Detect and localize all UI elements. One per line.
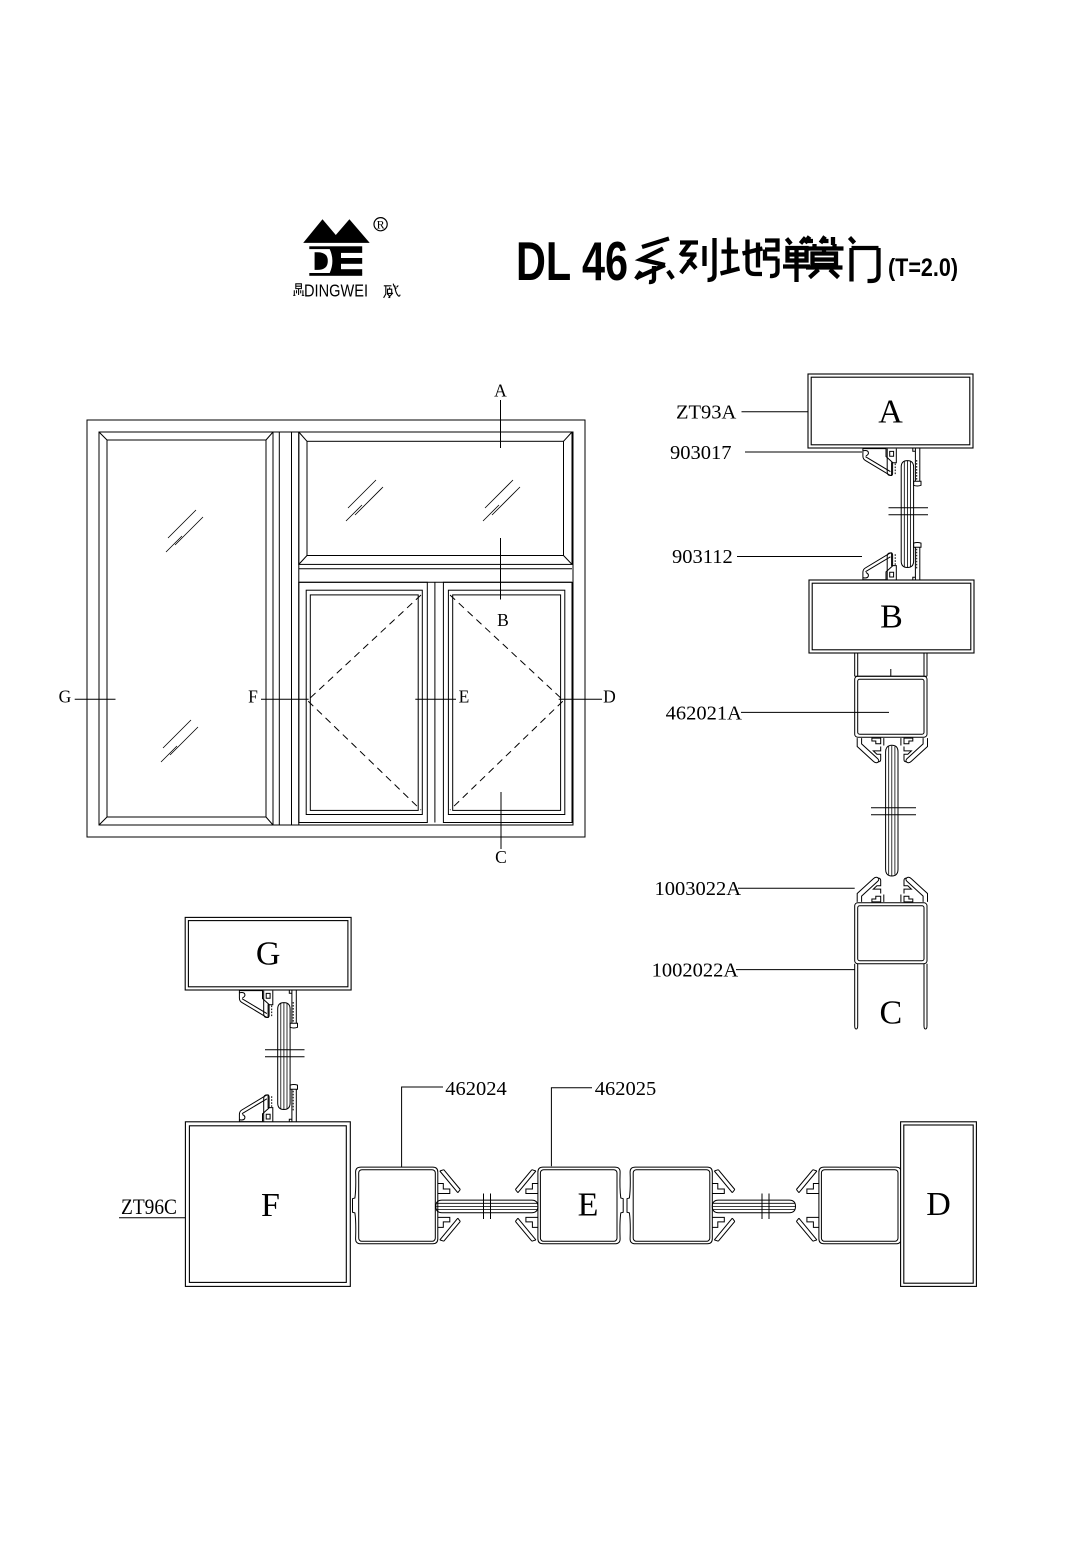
svg-text:C: C: [495, 847, 507, 867]
svg-text:DINGWEI: DINGWEI: [304, 281, 368, 301]
svg-text:B: B: [497, 610, 509, 630]
svg-text:G: G: [256, 936, 281, 973]
svg-text:1002022A: 1002022A: [652, 960, 739, 982]
svg-text:F: F: [248, 687, 258, 707]
svg-text:1003022A: 1003022A: [655, 878, 742, 900]
svg-text:E: E: [578, 1187, 599, 1224]
svg-text:A: A: [494, 381, 507, 401]
svg-text:462025: 462025: [595, 1078, 657, 1100]
svg-text:462021A: 462021A: [666, 702, 743, 724]
svg-text:B: B: [880, 598, 903, 635]
svg-text:ZT93A: ZT93A: [676, 402, 737, 424]
svg-text:DL 46: DL 46: [516, 230, 628, 292]
svg-text:G: G: [59, 687, 72, 707]
svg-text:D: D: [603, 687, 616, 707]
svg-text:462024: 462024: [445, 1078, 507, 1100]
svg-text:A: A: [878, 393, 903, 430]
svg-text:D: D: [926, 1186, 951, 1223]
svg-text:F: F: [261, 1187, 280, 1224]
svg-text:903017: 903017: [670, 442, 732, 464]
svg-text:C: C: [880, 995, 903, 1032]
svg-text:R: R: [377, 218, 385, 232]
svg-text:903112: 903112: [672, 546, 733, 568]
svg-text:E: E: [459, 687, 470, 707]
svg-text:(T=2.0): (T=2.0): [888, 254, 958, 282]
svg-text:ZT96C: ZT96C: [121, 1194, 177, 1219]
